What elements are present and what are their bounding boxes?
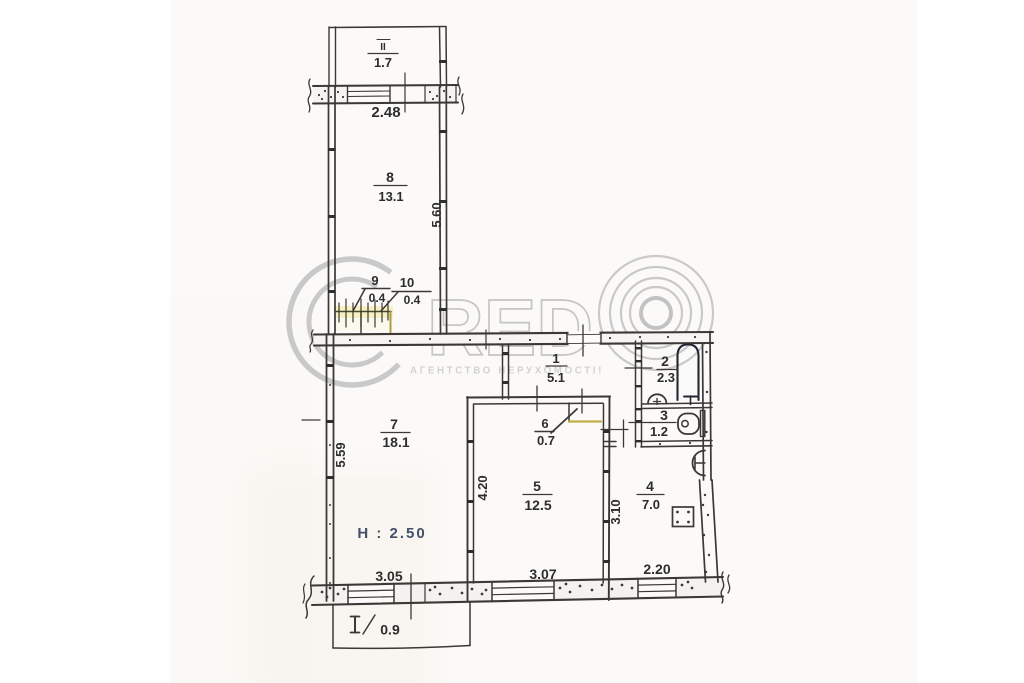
svg-text:3: 3 — [660, 407, 668, 423]
svg-text:3.10: 3.10 — [608, 499, 623, 524]
svg-text:5: 5 — [533, 478, 541, 494]
svg-text:0.4: 0.4 — [369, 291, 386, 305]
svg-text:2: 2 — [661, 353, 669, 369]
svg-text:3.05: 3.05 — [375, 568, 402, 584]
svg-text:1.2: 1.2 — [650, 424, 668, 439]
svg-text:13.1: 13.1 — [378, 189, 403, 204]
svg-text:12.5: 12.5 — [524, 497, 551, 513]
svg-text:II: II — [380, 42, 386, 53]
svg-text:1.7: 1.7 — [374, 55, 392, 70]
svg-text:18.1: 18.1 — [382, 434, 409, 450]
svg-text:5.59: 5.59 — [333, 442, 348, 467]
svg-text:2.20: 2.20 — [643, 561, 670, 577]
svg-text:5.1: 5.1 — [547, 370, 565, 385]
svg-text:2.3: 2.3 — [657, 370, 675, 385]
svg-text:4.20: 4.20 — [475, 475, 490, 500]
svg-text:0.9: 0.9 — [380, 622, 400, 638]
svg-text:5.60: 5.60 — [429, 202, 444, 227]
svg-text:6: 6 — [541, 416, 548, 431]
svg-text:H : 2.50: H : 2.50 — [357, 525, 426, 542]
svg-text:9: 9 — [371, 273, 378, 288]
svg-text:2.48: 2.48 — [371, 104, 400, 121]
svg-text:8: 8 — [386, 169, 394, 185]
svg-text:0.7: 0.7 — [537, 433, 555, 448]
svg-text:7: 7 — [390, 416, 398, 432]
svg-text:3.07: 3.07 — [529, 566, 556, 582]
svg-text:1: 1 — [552, 351, 559, 366]
svg-text:10: 10 — [400, 275, 414, 290]
svg-text:0.4: 0.4 — [404, 293, 421, 307]
svg-text:RED: RED — [427, 283, 593, 372]
svg-text:4: 4 — [646, 478, 654, 494]
svg-text:7.0: 7.0 — [642, 497, 660, 512]
svg-text:АГЕНТСТВО НЕРУХОМОСТІ!: АГЕНТСТВО НЕРУХОМОСТІ! — [410, 366, 604, 377]
